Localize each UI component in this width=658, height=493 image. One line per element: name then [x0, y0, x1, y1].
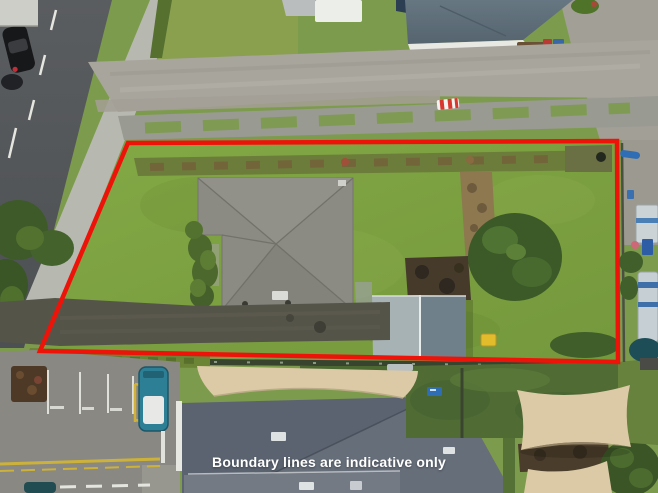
neighbour-lawn — [158, 0, 298, 60]
dark-soil-patch — [405, 256, 471, 300]
white-pole — [161, 431, 165, 463]
van-roof — [143, 396, 164, 424]
large-bush — [468, 213, 562, 301]
blue-sign — [427, 387, 442, 396]
neighbour-grey-roof — [282, 0, 315, 16]
parked-car-bottom — [24, 482, 56, 493]
roof-skylight — [272, 291, 288, 300]
square-sail — [517, 385, 631, 450]
pink-ball — [631, 241, 639, 249]
boundary-disclaimer-caption: Boundary lines are indicative only — [212, 454, 446, 470]
car-shadow — [1, 74, 23, 90]
parking-lot — [0, 350, 180, 493]
blue-bin-east — [642, 239, 653, 255]
teal-van — [139, 367, 168, 431]
aerial-photo-canvas — [0, 0, 658, 493]
white-gazebo-canopy — [315, 0, 362, 22]
bench — [387, 364, 413, 371]
building-white-edge — [176, 401, 182, 471]
neighbour-roof-top-left — [0, 0, 38, 26]
aerial-photo: Boundary lines are indicative only — [0, 0, 658, 493]
east-bush — [619, 251, 643, 273]
garden-bed — [11, 366, 47, 402]
yellow-object — [481, 334, 496, 346]
fence-bushes — [550, 332, 620, 358]
caravan — [636, 205, 658, 342]
roof-vent — [338, 180, 346, 186]
